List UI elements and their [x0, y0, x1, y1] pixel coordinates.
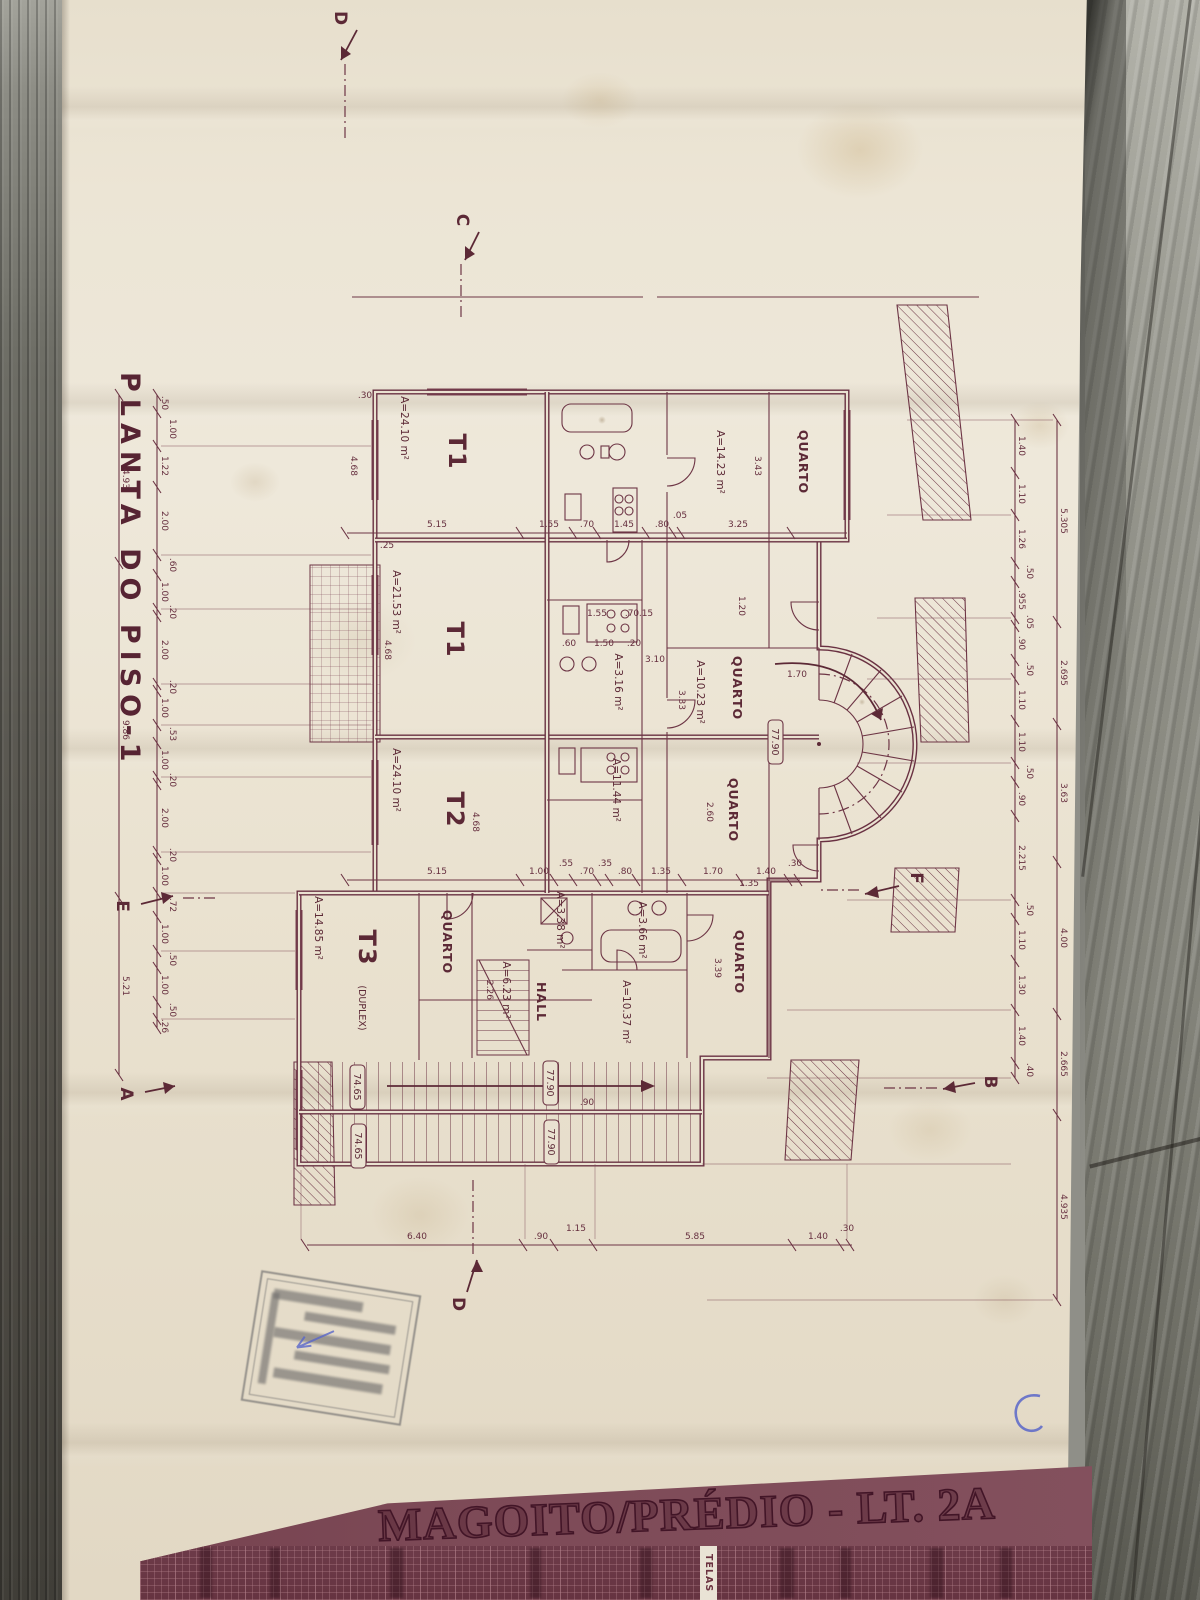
svg-text:A=11.44 m²: A=11.44 m²	[610, 758, 622, 822]
svg-text:.53: .53	[167, 727, 177, 741]
unit-t1b: T1	[441, 621, 469, 658]
room-quarto: QUARTO	[732, 930, 747, 994]
svg-text:.72: .72	[167, 898, 177, 912]
svg-text:4.68: 4.68	[470, 812, 480, 832]
svg-text:1.50: 1.50	[594, 639, 614, 649]
room-quarto: QUARTO	[726, 778, 741, 842]
svg-text:1.00: 1.00	[159, 582, 169, 602]
svg-text:(DUPLEX): (DUPLEX)	[356, 985, 367, 1030]
dimension-chain-interior-3: 6.40 .90 1.15 5.85 1.40 .30	[301, 1164, 854, 1251]
section-d-bottom: D	[448, 1297, 468, 1311]
svg-text:2.695: 2.695	[1058, 660, 1068, 686]
svg-text:5.21: 5.21	[120, 976, 130, 996]
svg-text:1.40: 1.40	[808, 1232, 828, 1242]
svg-text:.90: .90	[1016, 636, 1026, 651]
svg-text:A=21.53 m²: A=21.53 m²	[390, 570, 402, 634]
svg-text:.50: .50	[1024, 565, 1034, 580]
svg-text:.20: .20	[167, 773, 177, 788]
svg-text:6.40: 6.40	[407, 1232, 427, 1242]
svg-text:1.40: 1.40	[1016, 436, 1026, 456]
svg-text:.30: .30	[788, 859, 803, 869]
svg-text:2.26: 2.26	[484, 980, 494, 1000]
telas-tag: TELAS	[700, 1546, 717, 1600]
svg-text:.90: .90	[580, 1098, 595, 1108]
interior-walls	[299, 392, 847, 1060]
svg-text:3.43: 3.43	[752, 456, 762, 476]
dimension-chain-top: 5.305 2.695 3.63 4.00 2.665 4.935 1.40 1…	[702, 414, 1068, 1306]
svg-text:1.20: 1.20	[736, 596, 746, 616]
svg-text:4.935: 4.935	[1058, 1194, 1068, 1220]
svg-text:1.70: 1.70	[703, 867, 723, 877]
svg-text:.25: .25	[380, 541, 394, 551]
svg-text:74.65: 74.65	[351, 1073, 362, 1100]
svg-text:A=24.10 m²: A=24.10 m²	[398, 396, 410, 460]
svg-text:.50: .50	[1024, 662, 1034, 677]
svg-text:A=24.10 m²: A=24.10 m²	[390, 748, 402, 812]
svg-text:3.39: 3.39	[712, 958, 722, 978]
svg-text:5.85: 5.85	[685, 1232, 705, 1242]
svg-text:1.55: 1.55	[587, 609, 607, 619]
section-c: C	[452, 214, 472, 226]
svg-text:1.00: 1.00	[159, 975, 169, 995]
svg-text:77.90: 77.90	[769, 728, 780, 755]
svg-text:.05: .05	[673, 511, 687, 521]
dimension-chain-interior-1: 5.15 1.55 .70 1.45 .80 .05 3.25	[341, 511, 847, 539]
section-a: A	[116, 1087, 136, 1101]
unit-t2: T2	[441, 791, 469, 828]
svg-text:1.45: 1.45	[614, 520, 634, 530]
svg-text:A=10.37 m²: A=10.37 m²	[620, 980, 632, 1044]
svg-text:1.00: 1.00	[529, 867, 549, 877]
svg-text:74.65: 74.65	[352, 1132, 363, 1159]
svg-text:.30: .30	[840, 1224, 855, 1234]
photo-of-floor-plan: { "colors":{"ink":"#5f2b3a","paper":"#ea…	[0, 0, 1200, 1600]
svg-text:77.90: 77.90	[544, 1069, 555, 1096]
unit-t3: T3	[353, 929, 381, 966]
section-f: F	[906, 872, 926, 884]
svg-text:A=3.16 m²: A=3.16 m²	[612, 653, 624, 710]
svg-text:1.55: 1.55	[539, 520, 559, 530]
svg-text:.70: .70	[580, 520, 595, 530]
room-hall: HALL	[534, 982, 549, 1022]
svg-text:.50: .50	[1024, 765, 1034, 780]
wood-table-left	[0, 0, 62, 1600]
svg-text:.955: .955	[1016, 590, 1026, 610]
svg-text:.80: .80	[655, 520, 670, 530]
svg-text:2.00: 2.00	[159, 511, 169, 531]
svg-text:5.15: 5.15	[427, 867, 447, 877]
svg-text:4.93: 4.93	[120, 469, 130, 489]
svg-text:A=14.23 m²: A=14.23 m²	[714, 430, 726, 494]
svg-text:A=14.85 m²: A=14.85 m²	[312, 896, 324, 960]
svg-text:4.68: 4.68	[382, 640, 392, 660]
svg-text:1.00: 1.00	[159, 924, 169, 944]
svg-text:.60: .60	[562, 639, 577, 649]
svg-text:1.00: 1.00	[159, 698, 169, 718]
svg-text:3.63: 3.63	[1058, 783, 1068, 803]
svg-text:77.90: 77.90	[545, 1128, 556, 1155]
svg-text:1.00: 1.00	[159, 866, 169, 886]
svg-text:2.60: 2.60	[704, 802, 714, 822]
unit-t1: T1	[443, 433, 471, 470]
svg-text:9.86: 9.86	[120, 720, 130, 740]
svg-text:.50: .50	[159, 396, 169, 411]
svg-text:3.10: 3.10	[645, 655, 665, 665]
svg-text:1.40: 1.40	[1016, 1026, 1026, 1046]
svg-text:A=6.23 m²: A=6.23 m²	[500, 961, 512, 1018]
svg-text:.26: .26	[159, 1019, 169, 1034]
svg-text:.80: .80	[618, 867, 633, 877]
svg-text:1.00: 1.00	[167, 419, 177, 439]
svg-text:5.15: 5.15	[427, 520, 447, 530]
blue-pen-mark	[1008, 1390, 1054, 1440]
svg-text:.70: .70	[625, 609, 640, 619]
svg-text:1.26: 1.26	[1016, 529, 1026, 549]
svg-text:.90: .90	[1016, 792, 1026, 807]
svg-text:.50: .50	[167, 952, 177, 967]
svg-text:1.30: 1.30	[1016, 975, 1026, 995]
terrace-paving	[310, 565, 380, 742]
svg-text:2.00: 2.00	[159, 640, 169, 660]
svg-text:3.33: 3.33	[676, 690, 686, 710]
svg-text:1.10: 1.10	[1016, 484, 1026, 504]
svg-text:1.00: 1.00	[159, 750, 169, 770]
kitchen-bath-fixtures	[541, 404, 681, 962]
svg-text:.70: .70	[580, 867, 595, 877]
svg-text:1.10: 1.10	[1016, 690, 1026, 710]
title-block-grid: TELAS	[140, 1546, 1092, 1600]
svg-text:1.10: 1.10	[1016, 732, 1026, 752]
svg-text:1.35: 1.35	[651, 867, 671, 877]
room-quarto: QUARTO	[440, 910, 455, 974]
svg-text:4.68: 4.68	[348, 456, 358, 476]
svg-text:.50: .50	[167, 1003, 177, 1018]
svg-text:.40: .40	[1024, 1063, 1034, 1078]
svg-text:.05: .05	[1024, 615, 1034, 629]
svg-text:.35: .35	[598, 859, 612, 869]
section-e: E	[112, 900, 132, 912]
section-d-top: D	[330, 11, 350, 25]
svg-text:A=3.38 m²: A=3.38 m²	[554, 891, 566, 948]
svg-text:3.25: 3.25	[728, 520, 748, 530]
svg-text:2.665: 2.665	[1058, 1051, 1068, 1077]
svg-text:.20: .20	[167, 848, 177, 863]
svg-text:.15: .15	[639, 609, 653, 619]
svg-text:1.22: 1.22	[159, 456, 169, 476]
svg-text:4.00: 4.00	[1058, 928, 1068, 948]
svg-text:A=3.66 m²: A=3.66 m²	[636, 901, 648, 958]
section-b: B	[980, 1076, 1000, 1089]
dimension-chain-interior-2: 5.15 1.00 .55 .70 .35 .80 1.35 1.70 1.40…	[341, 859, 802, 886]
blue-pen-arrow	[285, 1318, 341, 1365]
room-quarto: QUARTO	[796, 430, 811, 494]
svg-text:.20: .20	[167, 605, 177, 620]
room-quarto: QUARTO	[730, 656, 745, 720]
floor-plan-drawing: PLANTA DO PISO-1	[62, 0, 1087, 1490]
svg-text:.30: .30	[358, 391, 373, 401]
svg-text:1.35: 1.35	[739, 879, 759, 889]
svg-text:.20: .20	[627, 639, 642, 649]
svg-text:.60: .60	[167, 558, 177, 573]
svg-text:A=10.23 m²: A=10.23 m²	[694, 660, 706, 724]
svg-text:.55: .55	[559, 859, 573, 869]
svg-text:.50: .50	[1024, 902, 1034, 917]
svg-text:2.215: 2.215	[1016, 845, 1026, 871]
svg-text:1.10: 1.10	[1016, 930, 1026, 950]
svg-text:.90: .90	[534, 1232, 549, 1242]
svg-text:5.305: 5.305	[1058, 508, 1068, 534]
svg-text:1.70: 1.70	[787, 670, 807, 680]
svg-text:1.40: 1.40	[756, 867, 776, 877]
svg-text:.20: .20	[167, 680, 177, 695]
svg-text:1.15: 1.15	[566, 1224, 586, 1234]
svg-text:2.00: 2.00	[159, 808, 169, 828]
